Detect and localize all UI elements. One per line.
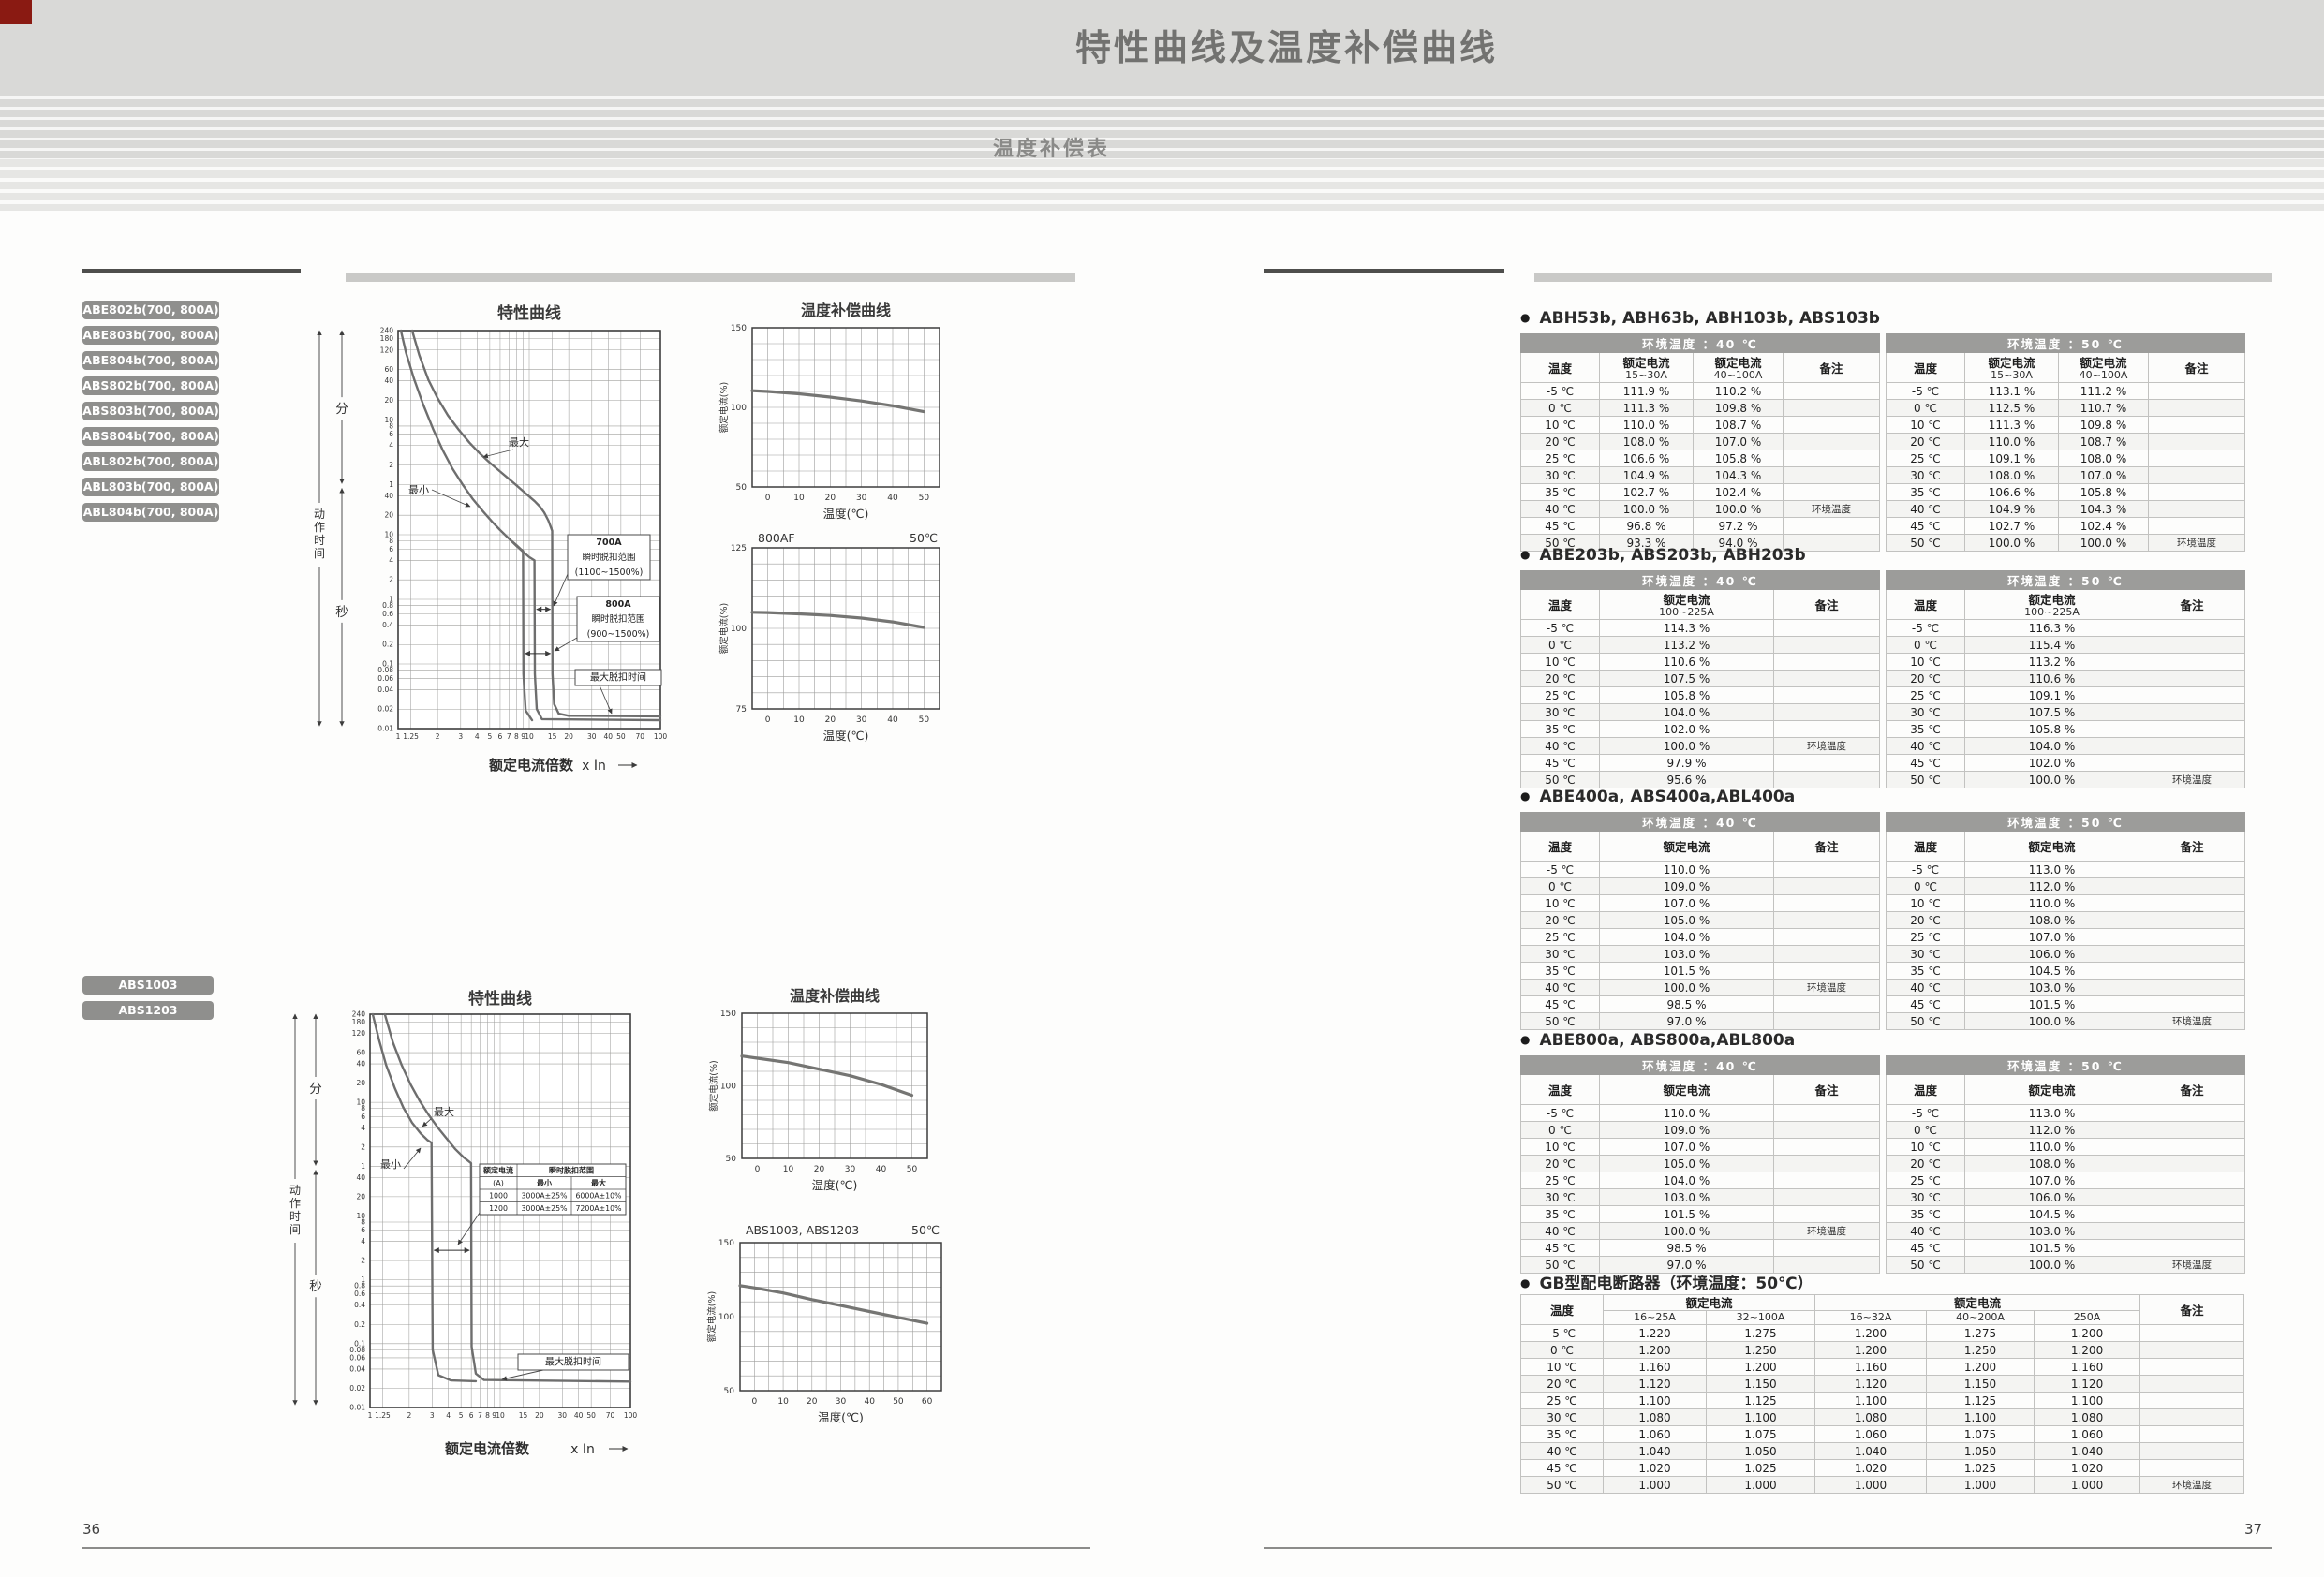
remark-cell xyxy=(1774,1156,1880,1172)
svg-text:40: 40 xyxy=(384,492,393,500)
column-header: 温度 xyxy=(1521,832,1600,862)
remark-cell xyxy=(1774,1189,1880,1206)
value-cell: 104.0 % xyxy=(1600,704,1774,721)
bullet-icon: ● xyxy=(1520,1276,1530,1290)
table-row: 30 ℃103.0 % xyxy=(1521,946,1880,963)
temp-cell: -5 ℃ xyxy=(1521,862,1600,878)
chart-title: 温度补偿曲线 xyxy=(800,302,891,319)
x-axis-label: 温度(℃) xyxy=(812,1178,858,1192)
table-row: 20 ℃110.6 % xyxy=(1887,671,2245,687)
value-cell: 1.000 xyxy=(1927,1477,2035,1494)
svg-text:75: 75 xyxy=(736,705,747,715)
table-group: ●GB型配电断路器（环境温度：50℃）温度额定电流额定电流备注16~25A32~… xyxy=(1520,1270,2243,1494)
table-row: 0 ℃112.0 % xyxy=(1887,878,2245,895)
column-header: 额定电流40~100A xyxy=(1694,353,1784,383)
table-row: 0 ℃109.0 % xyxy=(1521,878,1880,895)
value-cell: 103.0 % xyxy=(1600,1189,1774,1206)
svg-text:(1100~1500%): (1100~1500%) xyxy=(575,567,644,578)
temp-cell: 45 ℃ xyxy=(1521,518,1600,535)
table-row: 35 ℃101.5 % xyxy=(1521,963,1880,980)
table-row: 35 ℃104.5 % xyxy=(1887,1206,2245,1223)
banner-stripes xyxy=(0,89,2324,159)
remark-cell xyxy=(1774,895,1880,912)
value-cell: 100.0 % xyxy=(1600,1223,1774,1240)
temp-cell: 0 ℃ xyxy=(1887,637,1965,654)
value-cell: 1.120 xyxy=(1815,1376,1927,1393)
svg-text:0.01: 0.01 xyxy=(349,1404,365,1412)
column-header: 额定电流100~225A xyxy=(1600,590,1774,620)
value-cell: 109.8 % xyxy=(2059,417,2149,434)
svg-text:时: 时 xyxy=(289,1210,301,1223)
remark-cell xyxy=(1774,620,1880,637)
svg-text:瞬时脱扣范围: 瞬时脱扣范围 xyxy=(549,1166,594,1175)
remark-cell xyxy=(1784,450,1880,467)
ambient-temp-band: 环境温度 ：50 ℃ xyxy=(1887,571,2245,590)
value-cell: 109.1 % xyxy=(1965,450,2059,467)
remark-cell xyxy=(2139,1105,2245,1122)
value-cell: 110.0 % xyxy=(1965,895,2139,912)
remark-cell xyxy=(1784,400,1880,417)
value-cell: 110.2 % xyxy=(1694,383,1784,400)
table-row: 10 ℃110.6 % xyxy=(1521,654,1880,671)
value-cell: 105.8 % xyxy=(1600,687,1774,704)
column-header: 备注 xyxy=(2140,1295,2244,1325)
table-row: 20 ℃1.1201.1501.1201.1501.120 xyxy=(1521,1376,2244,1393)
svg-text:20: 20 xyxy=(384,396,393,405)
column-header: 额定电流 xyxy=(1965,1075,2139,1105)
table-row: 50 ℃95.6 % xyxy=(1521,772,1880,788)
svg-text:10: 10 xyxy=(525,732,534,741)
table-row: 0 ℃1.2001.2501.2001.2501.200 xyxy=(1521,1342,2244,1359)
table-row: 30 ℃107.5 % xyxy=(1887,704,2245,721)
value-cell: 102.7 % xyxy=(1965,518,2059,535)
table-row: 50 ℃1.0001.0001.0001.0001.000环境温度 xyxy=(1521,1477,2244,1494)
svg-text:动: 动 xyxy=(289,1184,301,1197)
svg-text:0.01: 0.01 xyxy=(377,725,393,733)
temp-cell: 0 ℃ xyxy=(1887,400,1965,417)
svg-text:最大脱扣时间: 最大脱扣时间 xyxy=(590,671,646,684)
svg-text:4: 4 xyxy=(361,1237,365,1245)
svg-text:700A: 700A xyxy=(596,538,622,548)
compensation-table-40c: 环境温度 ：40 ℃温度额定电流100~225A备注-5 ℃114.3 %0 ℃… xyxy=(1520,570,1880,788)
svg-text:30: 30 xyxy=(845,1165,856,1174)
value-cell: 103.0 % xyxy=(1965,1223,2139,1240)
value-cell: 1.000 xyxy=(1604,1477,1707,1494)
value-cell: 1.250 xyxy=(1707,1342,1815,1359)
value-cell: 101.5 % xyxy=(1965,1240,2139,1257)
svg-text:40: 40 xyxy=(604,732,614,741)
value-cell: 1.060 xyxy=(2035,1426,2140,1443)
svg-text:3: 3 xyxy=(430,1411,435,1420)
svg-text:30: 30 xyxy=(856,494,867,503)
value-cell: 113.2 % xyxy=(1600,637,1774,654)
remark-cell xyxy=(2139,912,2245,929)
table-row: 45 ℃102.0 % xyxy=(1887,755,2245,772)
temp-cell: 20 ℃ xyxy=(1521,1376,1604,1393)
svg-text:4: 4 xyxy=(361,1124,365,1132)
table-row: 45 ℃98.5 % xyxy=(1521,1240,1880,1257)
value-cell: 113.0 % xyxy=(1965,862,2139,878)
svg-text:0.02: 0.02 xyxy=(377,705,393,714)
value-cell: 113.2 % xyxy=(1965,654,2139,671)
value-cell: 1.060 xyxy=(1604,1426,1707,1443)
table-row: 25 ℃104.0 % xyxy=(1521,929,1880,946)
remark-cell xyxy=(2139,1189,2245,1206)
value-cell: 1.080 xyxy=(2035,1409,2140,1426)
compensation-table-50c: 环境温度 ：50 ℃温度额定电流100~225A备注-5 ℃116.3 %0 ℃… xyxy=(1886,570,2245,788)
value-cell: 1.160 xyxy=(1815,1359,1927,1376)
value-cell: 1.000 xyxy=(2035,1477,2140,1494)
table-row: -5 ℃113.1 %111.2 % xyxy=(1887,383,2245,400)
svg-text:40: 40 xyxy=(876,1165,887,1174)
red-corner-mark xyxy=(0,0,32,24)
table-row: 25 ℃104.0 % xyxy=(1521,1172,1880,1189)
svg-text:时: 时 xyxy=(314,534,325,547)
value-cell: 97.9 % xyxy=(1600,755,1774,772)
product-label: ABL803b(700, 800A) xyxy=(82,478,219,496)
product-label: ABL804b(700, 800A) xyxy=(82,503,219,522)
svg-text:1: 1 xyxy=(396,732,401,741)
table-row: 30 ℃104.0 % xyxy=(1521,704,1880,721)
table-row: 0 ℃109.0 % xyxy=(1521,1122,1880,1139)
value-cell: 102.7 % xyxy=(1600,484,1694,501)
svg-text:30: 30 xyxy=(856,715,867,725)
svg-text:120: 120 xyxy=(380,346,394,354)
temp-cell: 20 ℃ xyxy=(1887,434,1965,450)
min-label: 最小 xyxy=(408,484,429,496)
value-cell: 102.4 % xyxy=(2059,518,2149,535)
value-cell: 105.0 % xyxy=(1600,912,1774,929)
table-row: 0 ℃115.4 % xyxy=(1887,637,2245,654)
bullet-icon: ● xyxy=(1520,311,1530,324)
remark-cell xyxy=(1774,671,1880,687)
remark-cell xyxy=(2139,946,2245,963)
temp-cell: 35 ℃ xyxy=(1521,963,1600,980)
temp-cell: 20 ℃ xyxy=(1521,1156,1600,1172)
value-cell: 1.100 xyxy=(1815,1393,1927,1409)
remark-cell xyxy=(1774,704,1880,721)
remark-cell xyxy=(2140,1342,2244,1359)
svg-text:1200: 1200 xyxy=(489,1204,508,1213)
value-cell: 105.8 % xyxy=(2059,484,2149,501)
table-row: 50 ℃97.0 % xyxy=(1521,1013,1880,1030)
column-header: 额定电流15~30A xyxy=(1600,353,1694,383)
column-header: 温度 xyxy=(1521,1295,1604,1325)
svg-text:20: 20 xyxy=(825,715,836,725)
svg-text:20: 20 xyxy=(814,1165,825,1174)
value-cell: 1.050 xyxy=(1707,1443,1815,1460)
value-cell: 1.100 xyxy=(1707,1409,1815,1426)
temp-cell: 10 ℃ xyxy=(1887,1139,1965,1156)
table-row: 10 ℃111.3 %109.8 % xyxy=(1887,417,2245,434)
column-header: 备注 xyxy=(1774,590,1880,620)
temp-cell: 25 ℃ xyxy=(1521,929,1600,946)
remark-cell xyxy=(2140,1443,2244,1460)
table-group: ●ABE800a, ABS800a,ABL800a环境温度 ：40 ℃温度额定电… xyxy=(1520,1031,2243,1274)
svg-text:瞬时脱扣范围: 瞬时脱扣范围 xyxy=(591,613,644,625)
svg-text:2: 2 xyxy=(361,1142,365,1151)
temperature-compensation-chart: ABS1003, ABS120350℃010203040506050100150… xyxy=(703,1217,955,1461)
remark-cell: 环境温度 xyxy=(2139,772,2245,788)
table-row: 10 ℃1.1601.2001.1601.2001.160 xyxy=(1521,1359,2244,1376)
column-header: 备注 xyxy=(2139,1075,2245,1105)
value-cell: 111.3 % xyxy=(1965,417,2059,434)
ambient-temp-band: 环境温度 ：40 ℃ xyxy=(1521,334,1880,353)
value-cell: 1.200 xyxy=(1815,1325,1927,1342)
column-header: 温度 xyxy=(1887,590,1965,620)
svg-text:10: 10 xyxy=(783,1165,794,1174)
table-row: -5 ℃111.9 %110.2 % xyxy=(1521,383,1880,400)
column-header: 温度 xyxy=(1521,1075,1600,1105)
table-row: 40 ℃1.0401.0501.0401.0501.040 xyxy=(1521,1443,2244,1460)
compensation-table-50c: 环境温度 ：50 ℃温度额定电流15~30A额定电流40~100A备注-5 ℃1… xyxy=(1886,333,2245,552)
remark-cell xyxy=(2140,1325,2244,1342)
temp-cell: 30 ℃ xyxy=(1887,704,1965,721)
svg-text:7: 7 xyxy=(478,1411,482,1420)
table-row: 35 ℃104.5 % xyxy=(1887,963,2245,980)
value-cell: 109.1 % xyxy=(1965,687,2139,704)
value-cell: 1.275 xyxy=(1707,1325,1815,1342)
svg-text:50: 50 xyxy=(736,483,748,493)
remark-cell xyxy=(1774,1139,1880,1156)
temp-cell: 0 ℃ xyxy=(1521,878,1600,895)
value-cell: 104.5 % xyxy=(1965,963,2139,980)
value-cell: 108.0 % xyxy=(1965,1156,2139,1172)
svg-text:0: 0 xyxy=(755,1165,761,1174)
value-cell: 110.0 % xyxy=(1965,434,2059,450)
svg-text:150: 150 xyxy=(731,324,747,333)
svg-text:60: 60 xyxy=(384,365,393,374)
svg-text:50: 50 xyxy=(586,1411,596,1420)
svg-text:40: 40 xyxy=(356,1060,365,1069)
value-cell: 111.9 % xyxy=(1600,383,1694,400)
svg-text:间: 间 xyxy=(289,1223,301,1236)
svg-text:40: 40 xyxy=(887,494,898,503)
remark-cell xyxy=(2139,1139,2245,1156)
svg-text:10: 10 xyxy=(793,494,805,503)
bullet-icon: ● xyxy=(1520,548,1530,561)
table-row: 30 ℃1.0801.1001.0801.1001.080 xyxy=(1521,1409,2244,1426)
svg-text:15: 15 xyxy=(519,1411,528,1420)
svg-text:50: 50 xyxy=(616,732,626,741)
temp-cell: 40 ℃ xyxy=(1521,980,1600,996)
temp-cell: 20 ℃ xyxy=(1521,434,1600,450)
svg-text:8: 8 xyxy=(485,1411,490,1420)
column-group-header: 额定电流 xyxy=(1815,1295,2140,1311)
value-cell: 104.0 % xyxy=(1600,929,1774,946)
banner-stripes-light xyxy=(0,159,2324,211)
temp-cell: 50 ℃ xyxy=(1887,772,1965,788)
remark-cell xyxy=(2149,383,2245,400)
remark-cell xyxy=(1774,1206,1880,1223)
svg-text:50: 50 xyxy=(893,1397,904,1407)
table-row: 40 ℃103.0 % xyxy=(1887,1223,2245,1240)
temp-cell: 20 ℃ xyxy=(1887,1156,1965,1172)
value-cell: 98.5 % xyxy=(1600,1240,1774,1257)
temp-cell: 30 ℃ xyxy=(1887,946,1965,963)
remark-cell: 环境温度 xyxy=(2140,1477,2244,1494)
temp-cell: 0 ℃ xyxy=(1521,1342,1604,1359)
remark-cell: 环境温度 xyxy=(2139,1013,2245,1030)
value-cell: 1.200 xyxy=(1707,1359,1815,1376)
temp-cell: 0 ℃ xyxy=(1521,637,1600,654)
svg-text:30: 30 xyxy=(558,1411,568,1420)
remark-cell xyxy=(2139,895,2245,912)
svg-text:180: 180 xyxy=(380,334,394,343)
table-row: 10 ℃107.0 % xyxy=(1521,1139,1880,1156)
remark-cell: 环境温度 xyxy=(1774,738,1880,755)
value-cell: 105.0 % xyxy=(1600,1156,1774,1172)
remark-cell xyxy=(2139,755,2245,772)
column-header: 备注 xyxy=(2139,590,2245,620)
x-axis-label: 额定电流倍数 xyxy=(489,757,574,774)
svg-text:0.2: 0.2 xyxy=(354,1320,365,1329)
ambient-temp-band: 环境温度 ：40 ℃ xyxy=(1521,813,1880,832)
svg-text:5: 5 xyxy=(459,1411,464,1420)
column-header: 备注 xyxy=(1774,1075,1880,1105)
remark-cell xyxy=(1784,467,1880,484)
value-cell: 110.0 % xyxy=(1600,417,1694,434)
temp-cell: 0 ℃ xyxy=(1521,1122,1600,1139)
temp-cell: 40 ℃ xyxy=(1521,738,1600,755)
table-row: 30 ℃108.0 %107.0 % xyxy=(1887,467,2245,484)
value-cell: 100.0 % xyxy=(1600,501,1694,518)
temp-cell: 30 ℃ xyxy=(1521,467,1600,484)
temp-cell: -5 ℃ xyxy=(1521,1325,1604,1342)
table-row: 20 ℃105.0 % xyxy=(1521,1156,1880,1172)
temp-cell: 40 ℃ xyxy=(1521,1223,1600,1240)
temp-cell: 25 ℃ xyxy=(1887,1172,1965,1189)
value-cell: 114.3 % xyxy=(1600,620,1774,637)
table-row: 45 ℃1.0201.0251.0201.0251.020 xyxy=(1521,1460,2244,1477)
value-cell: 102.4 % xyxy=(1694,484,1784,501)
temp-cell: 10 ℃ xyxy=(1887,417,1965,434)
column-header: 额定电流 xyxy=(1965,832,2139,862)
svg-text:20: 20 xyxy=(384,511,393,520)
compensation-table-40c: 环境温度 ：40 ℃温度额定电流15~30A额定电流40~100A备注-5 ℃1… xyxy=(1520,333,1880,552)
temp-cell: 30 ℃ xyxy=(1521,1189,1600,1206)
temp-cell: 45 ℃ xyxy=(1521,1460,1604,1477)
table-row: 45 ℃101.5 % xyxy=(1887,1240,2245,1257)
temp-cell: 25 ℃ xyxy=(1521,450,1600,467)
temp-cell: 35 ℃ xyxy=(1521,721,1600,738)
table-row: 40 ℃103.0 % xyxy=(1887,980,2245,996)
remark-cell xyxy=(2149,484,2245,501)
svg-text:20: 20 xyxy=(356,1079,365,1087)
value-cell: 108.0 % xyxy=(1965,467,2059,484)
value-cell: 115.4 % xyxy=(1965,637,2139,654)
value-cell: 1.250 xyxy=(1927,1342,2035,1359)
value-cell: 108.7 % xyxy=(1694,417,1784,434)
product-label: ABS804b(700, 800A) xyxy=(82,427,219,446)
value-cell: 1.120 xyxy=(1604,1376,1707,1393)
table-row: 40 ℃104.0 % xyxy=(1887,738,2245,755)
svg-text:100: 100 xyxy=(654,732,668,741)
table-group: ●ABH53b, ABH63b, ABH103b, ABS103b环境温度 ：4… xyxy=(1520,309,2243,552)
temp-cell: 10 ℃ xyxy=(1521,1359,1604,1376)
svg-text:0.2: 0.2 xyxy=(382,641,393,649)
remark-cell xyxy=(1774,862,1880,878)
svg-text:5: 5 xyxy=(487,732,492,741)
value-cell: 1.060 xyxy=(1815,1426,1927,1443)
remark-cell xyxy=(1774,996,1880,1013)
value-cell: 1.020 xyxy=(1604,1460,1707,1477)
remark-cell xyxy=(2139,1122,2245,1139)
remark-cell xyxy=(2139,1240,2245,1257)
remark-cell xyxy=(2149,400,2245,417)
value-cell: 1.025 xyxy=(1927,1460,2035,1477)
svg-text:180: 180 xyxy=(352,1018,366,1026)
temp-cell: -5 ℃ xyxy=(1521,383,1600,400)
value-cell: 95.6 % xyxy=(1600,772,1774,788)
column-header: 备注 xyxy=(1784,353,1880,383)
value-cell: 111.3 % xyxy=(1600,400,1694,417)
table-row: 30 ℃106.0 % xyxy=(1887,1189,2245,1206)
column-header: 额定电流15~30A xyxy=(1965,353,2059,383)
svg-text:0.04: 0.04 xyxy=(377,685,393,694)
svg-text:1.25: 1.25 xyxy=(403,732,419,741)
svg-text:瞬时脱扣范围: 瞬时脱扣范围 xyxy=(582,552,635,563)
remark-cell xyxy=(1774,1013,1880,1030)
remark-cell xyxy=(2149,417,2245,434)
value-cell: 1.040 xyxy=(1815,1443,1927,1460)
left-footer-rule xyxy=(82,1547,1090,1549)
temp-cell: 10 ℃ xyxy=(1521,1139,1600,1156)
svg-text:50℃: 50℃ xyxy=(911,1223,940,1237)
svg-text:0.04: 0.04 xyxy=(349,1364,365,1373)
svg-text:额定电流: 额定电流 xyxy=(483,1166,513,1175)
svg-text:秒: 秒 xyxy=(335,605,348,620)
temp-cell: 0 ℃ xyxy=(1521,400,1600,417)
svg-text:0.4: 0.4 xyxy=(354,1301,365,1309)
value-cell: 109.0 % xyxy=(1600,878,1774,895)
table-row: -5 ℃113.0 % xyxy=(1887,862,2245,878)
temp-cell: -5 ℃ xyxy=(1887,383,1965,400)
svg-text:2: 2 xyxy=(389,576,393,584)
x-axis-label: 温度(℃) xyxy=(823,507,869,521)
value-cell: 108.0 % xyxy=(2059,450,2149,467)
max-label: 最大 xyxy=(509,435,529,449)
table-row: 25 ℃107.0 % xyxy=(1887,1172,2245,1189)
svg-text:100: 100 xyxy=(624,1411,638,1420)
svg-text:分: 分 xyxy=(309,1082,322,1097)
max-label: 最大 xyxy=(434,1105,454,1118)
svg-text:3: 3 xyxy=(458,732,463,741)
svg-text:10: 10 xyxy=(496,1411,505,1420)
temp-cell: 40 ℃ xyxy=(1887,1223,1965,1240)
product-label: ABS802b(700, 800A) xyxy=(82,376,219,395)
svg-text:4: 4 xyxy=(389,441,393,450)
temp-cell: 45 ℃ xyxy=(1521,755,1600,772)
table-row: 35 ℃102.7 %102.4 % xyxy=(1521,484,1880,501)
table-group: ●ABE400a, ABS400a,ABL400a环境温度 ：40 ℃温度额定电… xyxy=(1520,788,2243,1030)
svg-text:6: 6 xyxy=(498,732,503,741)
temp-cell: 30 ℃ xyxy=(1887,467,1965,484)
remark-cell xyxy=(1774,1105,1880,1122)
remark-cell xyxy=(2139,721,2245,738)
value-cell: 1.100 xyxy=(1604,1393,1707,1409)
table-row: 35 ℃105.8 % xyxy=(1887,721,2245,738)
svg-text:6: 6 xyxy=(389,545,393,553)
value-cell: 1.125 xyxy=(1707,1393,1815,1409)
svg-text:50: 50 xyxy=(919,494,930,503)
value-cell: 100.0 % xyxy=(1600,980,1774,996)
value-cell: 111.2 % xyxy=(2059,383,2149,400)
table-row: 25 ℃105.8 % xyxy=(1521,687,1880,704)
remark-cell xyxy=(1774,755,1880,772)
svg-text:8: 8 xyxy=(514,732,519,741)
temp-cell: 10 ℃ xyxy=(1521,895,1600,912)
